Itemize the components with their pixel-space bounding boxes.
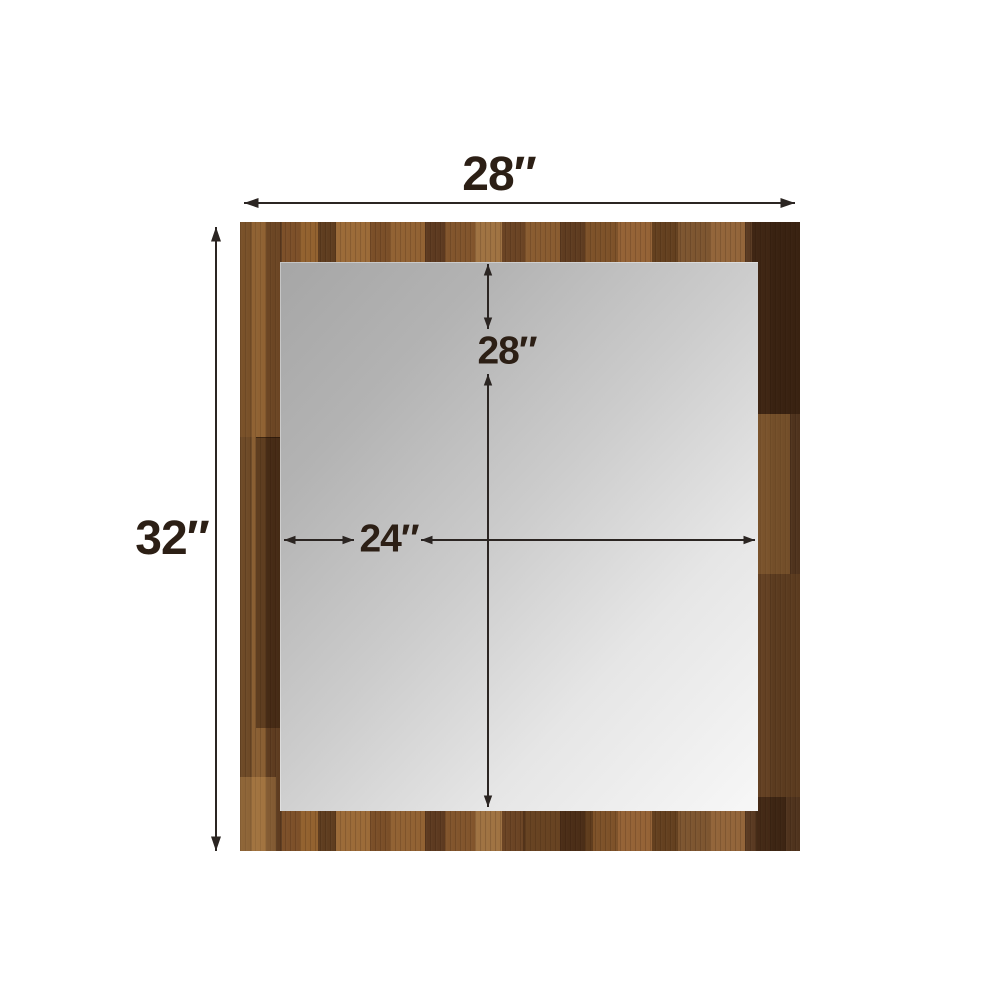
mirror-height-label: 28″ xyxy=(477,332,536,371)
wood-plank-patch xyxy=(756,797,786,851)
mirror-width-label: 24″ xyxy=(359,520,418,559)
frame-height-label: 32″ xyxy=(135,515,208,563)
wood-plank-patch xyxy=(523,811,593,851)
product-dimension-diagram: 28″ 32″ 28″ 24″ xyxy=(0,0,1000,1000)
mirror-wood-frame xyxy=(240,222,800,851)
wood-plank-patch xyxy=(752,222,800,414)
wood-plank-patch xyxy=(758,414,790,574)
wood-plank-patch xyxy=(758,574,800,797)
wood-plank-patch xyxy=(240,777,276,851)
wood-plank-patch xyxy=(240,222,280,437)
wood-plank-patch xyxy=(256,437,280,728)
frame-width-label: 28″ xyxy=(462,151,535,199)
